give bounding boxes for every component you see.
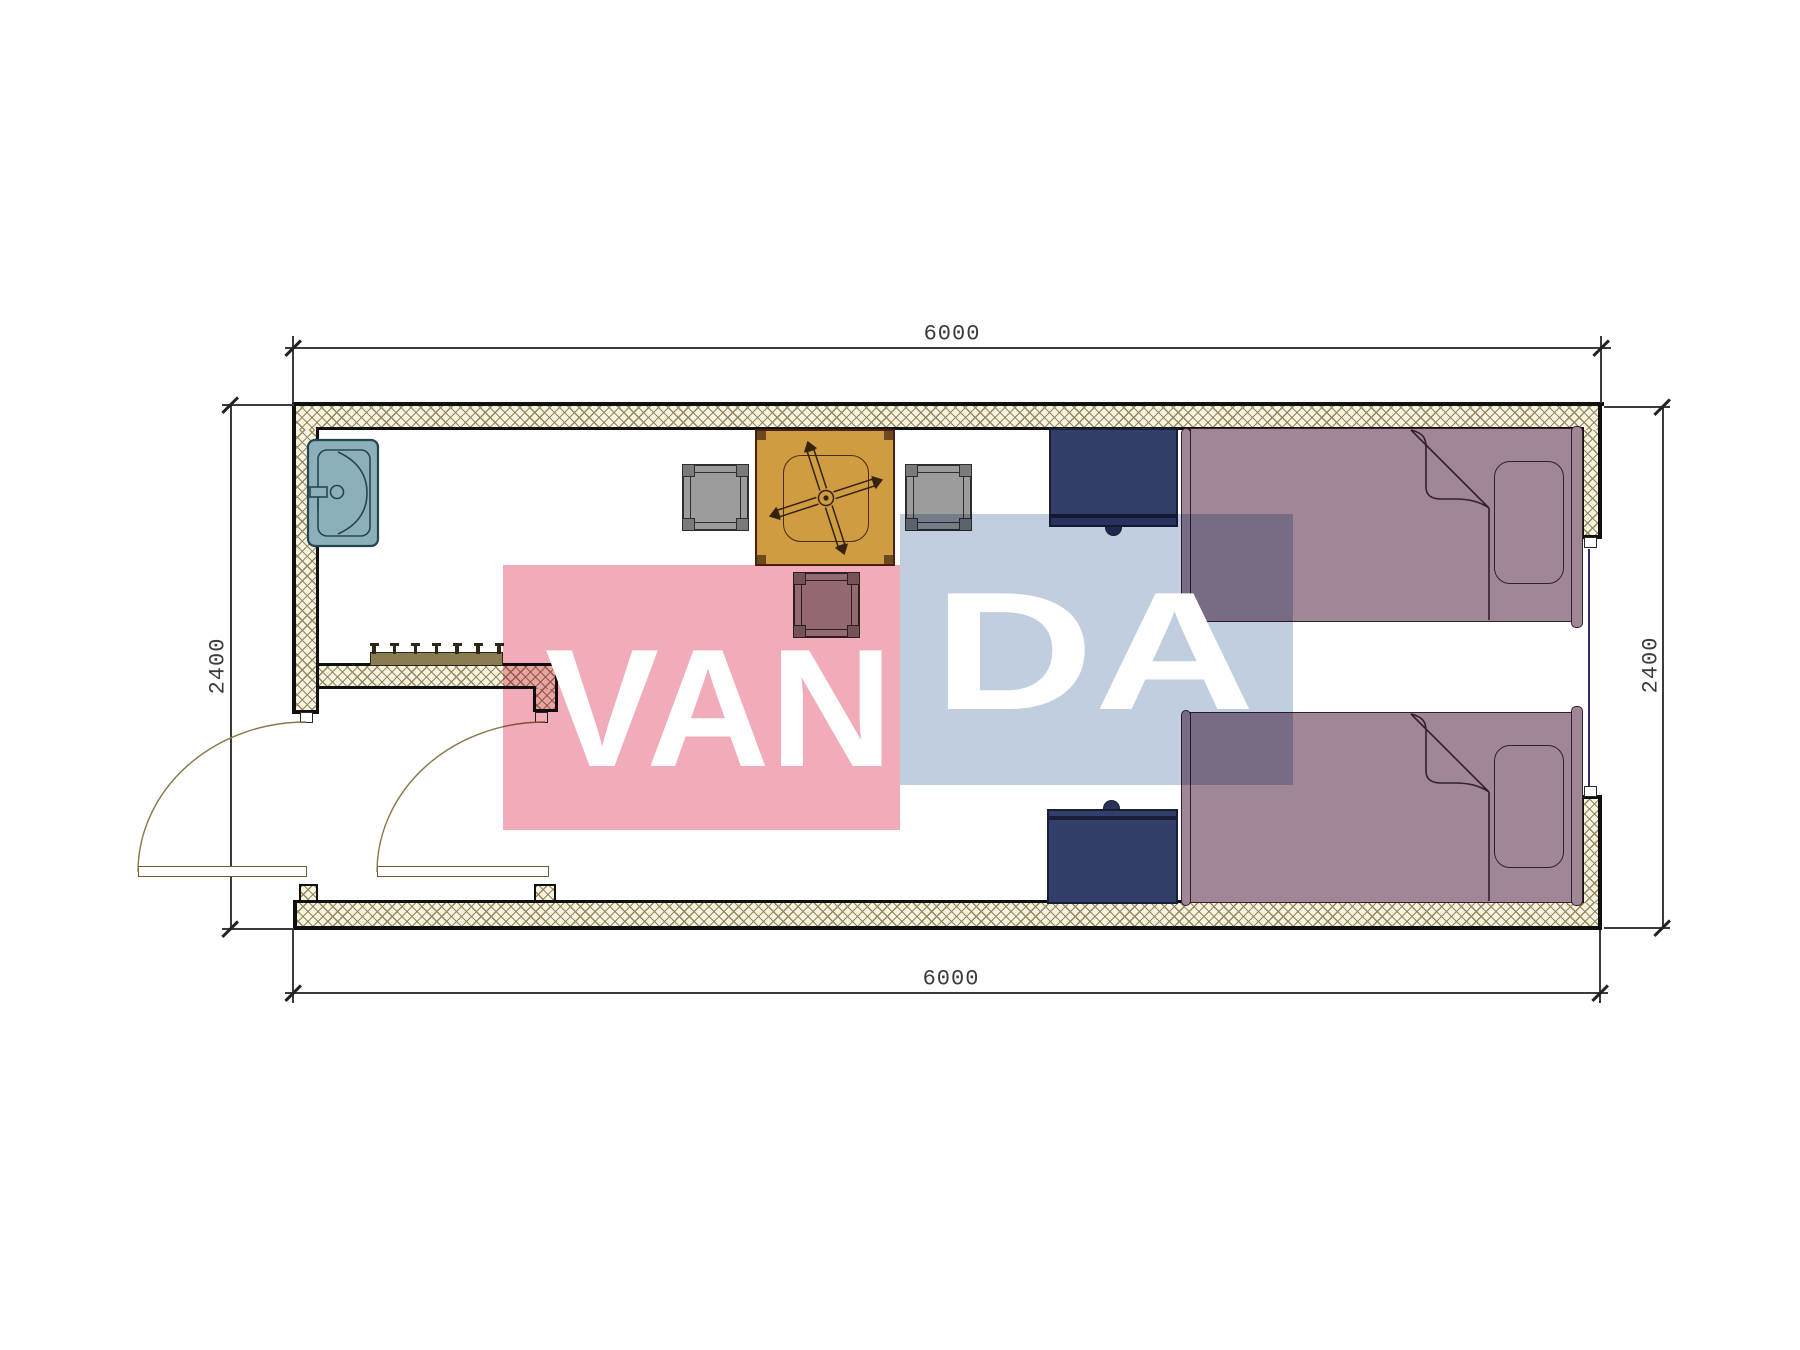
floor-plan-canvas: 6000 6000 2400 2400 [0,0,1800,1350]
coat-hook [455,645,459,654]
stool-left [682,464,749,531]
coat-hook [476,645,480,654]
sink-basin-curve [338,452,367,534]
coat-hook [414,645,418,654]
watermark-pink-rect [503,565,900,830]
wall-left-exterior-line [292,402,296,714]
coat-hook [435,645,439,654]
coat-hook-cap [390,643,399,646]
table [755,429,895,566]
wall-right-exterior-line-upper [1598,402,1602,539]
coat-hook-cap [432,643,441,646]
coat-rack [370,643,503,666]
vestibule-door-leaf [377,866,549,877]
wall-top-exterior-line [292,402,1604,406]
dim-ext-left-top [222,404,294,406]
coat-hook-cap [474,643,483,646]
nightstand-bottom-drawer [1047,809,1178,818]
door-frame-jamb-left-wall [300,712,313,723]
window-jamb-bottom [1584,786,1597,797]
bed-top-pillow [1494,461,1564,584]
dim-label-top: 6000 [924,322,981,347]
dim-line-top [285,347,1611,349]
coat-hook [372,645,376,654]
table-top-inner [783,455,869,542]
wall-left-interior-line [316,427,319,714]
dim-line-bottom [285,992,1608,994]
window-jamb-top [1584,537,1597,548]
door-swing-arcs [138,722,545,872]
entry-door-arc [138,722,306,872]
sink-basin [318,450,370,536]
watermark-blue-rect [900,514,1293,785]
table-corner [884,431,893,440]
coat-hook [393,645,397,654]
coat-rack-bar [370,652,503,666]
coat-hook-cap [453,643,462,646]
bed-bottom-headboard [1571,706,1583,906]
entry-door-leaf [138,866,307,877]
table-corner [757,431,766,440]
table-corner [757,555,766,564]
coat-hook-cap [411,643,420,646]
nightstand-top-body [1049,428,1178,516]
coat-hook-cap [370,643,379,646]
dim-label-left: 2400 [206,638,231,695]
window-glass-line [1588,549,1590,786]
coat-hook [497,645,501,654]
bed-bottom-pillow [1494,745,1564,868]
dim-label-bottom: 6000 [923,967,980,992]
sink-faucet-handle [331,486,344,499]
coat-rack-hooks [370,643,503,653]
table-corner [884,555,893,564]
wall-bottom-exterior-line [293,926,1602,930]
bed-top-headboard [1571,426,1583,628]
dim-label-right: 2400 [1639,637,1664,694]
dim-ext-left-bottom [222,928,294,930]
wall-right-exterior-line-lower [1598,795,1602,930]
wall-bottom-left-cap [293,900,297,930]
stool-seat [690,472,741,523]
nightstand-bottom-knob [1103,800,1120,809]
nightstand-bottom-body [1047,818,1178,904]
